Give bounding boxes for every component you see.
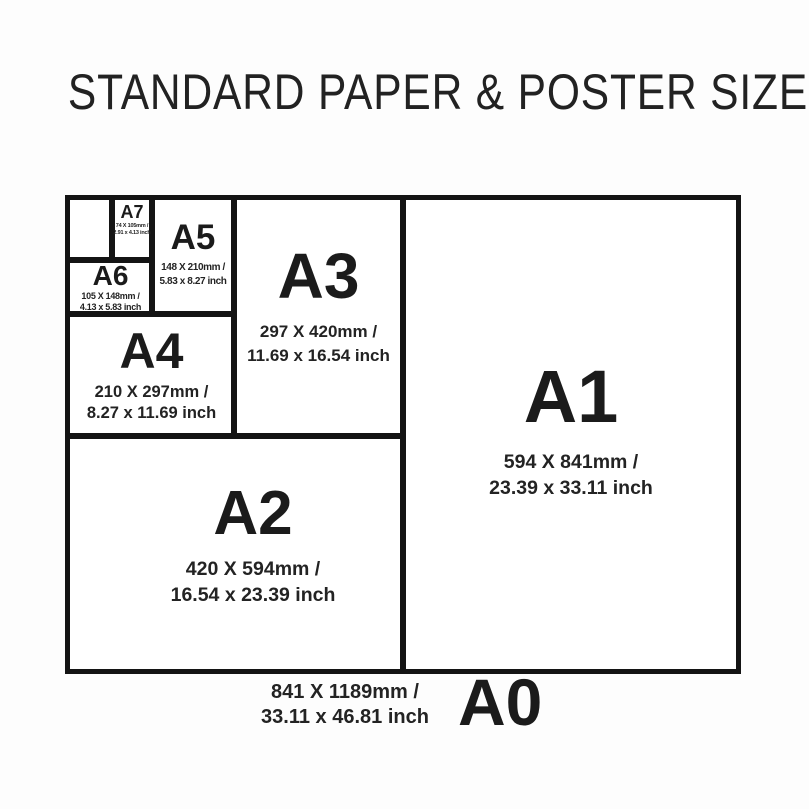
cell-a5: A5 148 X 210mm / 5.83 x 8.27 inch (154, 218, 232, 288)
a0-dimensions: 841 X 1189mm / 33.11 x 46.81 inch (195, 680, 495, 730)
page-title-wrap: STANDARD PAPER & POSTER SIZES (0, 66, 809, 118)
a4-size-label: A4 (70, 322, 233, 380)
size-diagram: A7 74 X 105mm / 2.91 x 4.13 inch A6 105 … (65, 195, 741, 674)
cell-a4: A4 210 X 297mm / 8.27 x 11.69 inch (70, 322, 233, 423)
a4-dimensions-mm: 210 X 297mm / (70, 382, 233, 403)
a2-dimensions-mm: 420 X 594mm / (85, 556, 421, 582)
a2-size-label: A2 (85, 478, 421, 550)
a6-dimensions-inch: 4.13 x 5.83 inch (70, 302, 151, 313)
cell-a3: A3 297 X 420mm / 11.69 x 16.54 inch (237, 240, 400, 368)
cell-a6: A6 105 X 148mm / 4.13 x 5.83 inch (70, 261, 151, 313)
a0-size-label: A0 (458, 664, 542, 740)
a1-size-label: A1 (406, 355, 736, 439)
a3-dimensions-mm: 297 X 420mm / (237, 320, 400, 344)
cell-a1: A1 594 X 841mm / 23.39 x 33.11 inch (406, 355, 736, 501)
a3-dimensions-inch: 11.69 x 16.54 inch (237, 344, 400, 368)
a6-size-label: A6 (70, 261, 151, 291)
a1-dimensions-mm: 594 X 841mm / (406, 449, 736, 475)
a5-dimensions-inch: 5.83 x 8.27 inch (154, 275, 232, 289)
a6-dimensions-mm: 105 X 148mm / (70, 291, 151, 302)
a5-dimensions-mm: 148 X 210mm / (154, 261, 232, 275)
a7-size-label: A7 (111, 201, 153, 223)
a4-dimensions-inch: 8.27 x 11.69 inch (70, 403, 233, 424)
a0-dimensions-inch: 33.11 x 46.81 inch (195, 705, 495, 730)
divider-a2-top-edge (70, 433, 406, 439)
a5-size-label: A5 (154, 218, 232, 258)
a2-dimensions-inch: 16.54 x 23.39 inch (85, 582, 421, 608)
a7-dimensions-mm: 74 X 105mm / (111, 223, 153, 230)
cell-a2: A2 420 X 594mm / 16.54 x 23.39 inch (85, 478, 421, 608)
cell-a7: A7 74 X 105mm / 2.91 x 4.13 inch (111, 201, 153, 236)
a0-dimensions-mm: 841 X 1189mm / (195, 680, 495, 705)
a7-dimensions-inch: 2.91 x 4.13 inch (111, 230, 153, 237)
a1-dimensions-inch: 23.39 x 33.11 inch (406, 475, 736, 501)
a3-size-label: A3 (237, 240, 400, 312)
page-title: STANDARD PAPER & POSTER SIZES (68, 66, 809, 118)
paper-sizes-infographic: STANDARD PAPER & POSTER SIZES A7 74 X 10… (0, 0, 809, 809)
